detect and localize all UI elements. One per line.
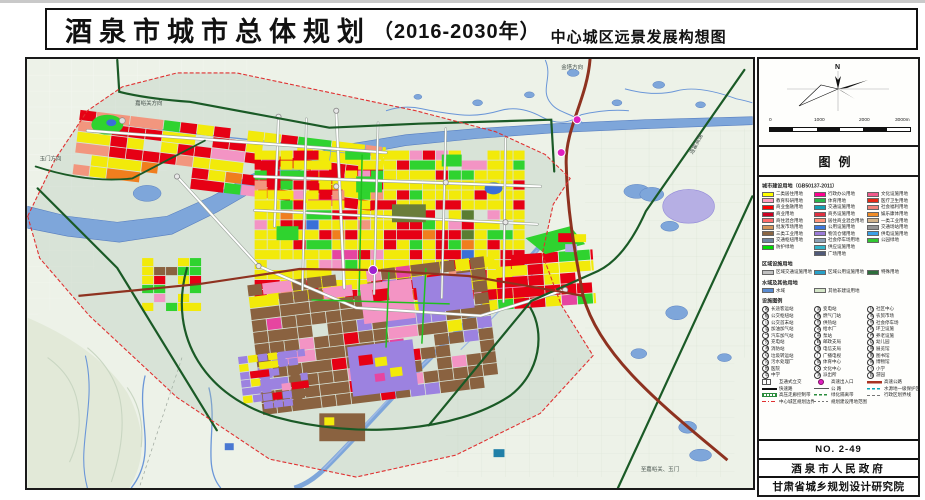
color-swatch — [814, 270, 826, 275]
legend-label: 泵站 — [823, 334, 832, 339]
facility-legend-item: 广广播电视 — [814, 352, 866, 359]
legend-label: 给水厂 — [823, 327, 837, 332]
legend-label: 医院 — [771, 367, 780, 372]
line-legend-item: 互通式立交 — [762, 379, 814, 386]
legend-item: 行政办公用地 — [814, 191, 866, 198]
legend-label: 小学 — [876, 367, 885, 372]
legend-label: 二类居住用地 — [776, 192, 803, 197]
page: 酒泉市城市总体规划 （2016-2030年） 中心城区远景发展构想图 金塔方向嘉… — [0, 0, 925, 500]
water-legend-row: 水域其他非建设用地 — [762, 288, 915, 295]
color-swatch — [867, 231, 879, 236]
facility-icon: 养 — [867, 333, 874, 340]
plan-years: （2016-2030年） — [373, 15, 541, 44]
scale-bar: 0 1000 2000 3000m — [769, 117, 911, 139]
facility-legend-item: 医医院 — [762, 365, 814, 372]
color-swatch — [814, 205, 826, 210]
legend-label: 燃气门站 — [823, 314, 841, 319]
color-swatch — [867, 225, 879, 230]
facility-legend-item: 市农贸市场 — [867, 313, 918, 320]
legend-item: 批发市场用地 — [762, 224, 814, 231]
bridge-swatch — [762, 379, 771, 385]
facility-icon: 医 — [762, 365, 769, 372]
facility-legend-item: 停社会停车场 — [867, 319, 918, 326]
title-bar: 酒泉市城市总体规划 （2016-2030年） 中心城区远景发展构想图 — [45, 8, 918, 50]
dash-grey-swatch — [867, 392, 882, 399]
legend-label: 水源地一级保护区 — [884, 386, 918, 391]
facility-legend-item: 养养老设施 — [867, 333, 918, 340]
legend-item: 公用设施用地 — [814, 224, 866, 231]
facility-icon: 热 — [814, 319, 821, 326]
design-institute: 甘肃省城乡规划设计研究院 — [759, 476, 918, 495]
legend-label: 高速公路 — [884, 380, 902, 385]
facility-icon: 枢 — [762, 313, 769, 320]
facility-legend-item: 垃垃圾转运站 — [762, 352, 814, 359]
legend-label: 文化设施用地 — [881, 192, 908, 197]
color-swatch — [867, 205, 879, 210]
legend-label: 广播电视 — [823, 353, 841, 358]
svg-text:金塔方向: 金塔方向 — [561, 63, 583, 71]
legend-label: 商务设施用地 — [828, 212, 855, 217]
legend-label: 绿化隔离带 — [831, 393, 854, 398]
map-canvas: 金塔方向嘉峪关方向玉门方向连霍高速至嘉峪关、玉门 — [27, 59, 753, 488]
legend-label: 社区中心 — [876, 307, 894, 312]
legend-label: 商业金融用地 — [776, 205, 803, 210]
line-legend-item: 快速路 — [762, 385, 814, 392]
color-swatch — [814, 245, 826, 250]
legend-label: 图书馆 — [876, 353, 890, 358]
color-swatch — [814, 238, 826, 243]
facility-legend-item: 信电信支局 — [814, 346, 866, 353]
legend-label: 污水处理厂 — [771, 360, 794, 365]
dash-teal-swatch — [867, 385, 882, 392]
legend-label: 行政办公用地 — [828, 192, 855, 197]
color-swatch — [814, 212, 826, 217]
facility-legend-item: 污污水处理厂 — [762, 359, 814, 366]
legend-label: 规划建设用地范围 — [831, 399, 866, 404]
legend-body: 城市建设用地（GB50137-2011） 二类居住用地教育科研用地商业金融用地商… — [759, 177, 918, 444]
color-swatch — [814, 288, 826, 293]
legend-item: 居住商业混合用地 — [814, 217, 866, 224]
regional-legend-row: 区域交通设施用地区域公用设施用地特殊用地 — [762, 269, 915, 276]
facility-legend-item: 展展览馆 — [867, 346, 918, 353]
facility-icon: 垃 — [762, 352, 769, 359]
legend-label: 特殊用地 — [881, 270, 899, 275]
color-swatch — [814, 225, 826, 230]
line-legend-item: 规划建设用地范围 — [814, 398, 866, 405]
facility-legend-item: 公公交首末站 — [762, 319, 814, 326]
svg-text:至嘉峪关、玉门: 至嘉峪关、玉门 — [641, 465, 679, 473]
line-legend-item: 公 路 — [814, 385, 866, 392]
dashdot-red-swatch — [762, 398, 777, 405]
color-swatch — [762, 198, 774, 203]
scale-bar-segments — [769, 127, 911, 132]
sheet-number: NO. 2-49 — [759, 439, 918, 458]
legend-label: 娱乐康体用地 — [881, 212, 908, 217]
svg-text:玉门方向: 玉门方向 — [40, 155, 62, 163]
facility-icon: 公 — [762, 319, 769, 326]
compass-rose-icon: N — [759, 59, 918, 115]
line-legend-item: 高压走廊控制带 — [762, 392, 814, 399]
facility-legend-item: 泵泵站 — [814, 333, 866, 340]
facility-legend-item: 社社区中心 — [867, 306, 918, 313]
legend-label: 居住商业混合用地 — [828, 218, 864, 223]
legend-label: 交通设施用地 — [828, 205, 855, 210]
facility-icon: 污 — [762, 359, 769, 366]
legend-item: 广场用地 — [814, 250, 866, 257]
color-swatch — [814, 251, 826, 256]
legend-label: 变电站 — [823, 307, 837, 312]
legend-label: 一类工业用地 — [881, 218, 908, 223]
hatch-green-swatch — [762, 393, 777, 398]
line-legend-item: 行政区划界线 — [867, 392, 918, 399]
legend-label: 互通式立交 — [779, 380, 802, 385]
legend-label: 农贸市场 — [876, 314, 894, 319]
color-swatch — [762, 245, 774, 250]
facility-icon: 派 — [814, 372, 821, 379]
line-legend-item: 水源地一级保护区 — [867, 385, 918, 392]
north-label: N — [835, 64, 840, 71]
facility-legend-item: 图图书馆 — [867, 352, 918, 359]
facility-icon: 博 — [867, 359, 874, 366]
color-swatch — [814, 218, 826, 223]
legend-item: 教育科研用地 — [762, 198, 814, 205]
facility-legend-item: 邮邮政支局 — [814, 339, 866, 346]
legend-label: 物流仓储用地 — [828, 232, 855, 237]
facility-icon: 水 — [814, 326, 821, 333]
legend-label: 游园 — [876, 373, 885, 378]
legend-item: 水域 — [762, 288, 814, 295]
facility-icon: 小 — [867, 365, 874, 372]
legend-item: 供电设施用地 — [867, 231, 918, 238]
water-section-header: 水域及其他用地 — [762, 278, 915, 287]
legend-label: 消防站 — [771, 347, 785, 352]
legend-label: 教育科研用地 — [776, 199, 803, 204]
legend-item: 文化设施用地 — [867, 191, 918, 198]
facility-icon: 泵 — [814, 333, 821, 340]
legend-label: 行政区划界线 — [884, 393, 911, 398]
legend-label: 体育用地 — [828, 199, 846, 204]
legend-item: 交通场站用地 — [867, 224, 918, 231]
legend-label: 区域交通设施用地 — [776, 270, 812, 275]
legend-label: 公园绿地 — [881, 238, 899, 243]
facility-icon: 油 — [762, 326, 769, 333]
facility-legend-item: 热供热站 — [814, 319, 866, 326]
legend-label: 博物馆 — [876, 360, 890, 365]
facility-icon: 环 — [867, 326, 874, 333]
color-swatch — [867, 218, 879, 223]
legend-label: 防护绿地 — [776, 245, 794, 250]
facility-legend-item: 客长途客运站 — [762, 306, 814, 313]
color-swatch — [762, 205, 774, 210]
facility-icon: 展 — [867, 346, 874, 353]
legend-item: 特殊用地 — [867, 269, 918, 276]
legend-item: 娱乐康体用地 — [867, 211, 918, 218]
legend-label: 公 路 — [831, 386, 841, 391]
color-swatch — [867, 212, 879, 217]
line-red-swatch — [867, 379, 882, 386]
legend-label: 派出所 — [823, 373, 837, 378]
facility-icon: 文 — [814, 365, 821, 372]
legend-label: 幼儿园 — [876, 340, 890, 345]
legend-label: 供热站 — [823, 320, 837, 325]
landuse-section-header: 城市建设用地（GB50137-2011） — [762, 181, 915, 190]
svg-text:嘉峪关方向: 嘉峪关方向 — [135, 99, 162, 107]
legend-label: 其他非建设用地 — [828, 289, 860, 294]
title-block: NO. 2-49 酒泉市人民政府 甘肃省城乡规划设计研究院 — [759, 439, 918, 495]
dot-swatch — [818, 379, 824, 385]
line-black-swatch — [762, 385, 777, 392]
facility-icon: 中 — [762, 372, 769, 379]
color-swatch — [762, 231, 774, 236]
color-swatch — [762, 218, 774, 223]
facility-icon: 停 — [867, 319, 874, 326]
legend-item: 一类工业用地 — [867, 217, 918, 224]
dash-grey2-swatch — [814, 398, 829, 405]
color-swatch — [762, 288, 774, 293]
color-swatch — [814, 231, 826, 236]
legend-item: 防护绿地 — [762, 244, 814, 251]
dash-green-swatch — [814, 392, 829, 399]
legend-label: 展览馆 — [876, 347, 890, 352]
legend-sidebar: N 0 1000 2000 3000m 图例 城市建设用地（GB50137-20… — [757, 57, 920, 497]
legend-label: 公交枢纽站 — [771, 314, 794, 319]
legend-label: 三类工业用地 — [776, 232, 803, 237]
facility-icon: 消 — [762, 346, 769, 353]
legend-item: 二类居住用地 — [762, 191, 814, 198]
facility-icon: 幼 — [867, 339, 874, 346]
page-subtitle: 中心城区远景发展构想图 — [551, 26, 727, 47]
legend-label: 公交首末站 — [771, 320, 794, 325]
facility-icon: 客 — [762, 306, 769, 313]
facility-legend-item: 博博物馆 — [867, 359, 918, 366]
line-legend-item: 中心城区规划边界 — [762, 398, 814, 405]
facility-legend-item: 文文化中心 — [814, 365, 866, 372]
facility-icon: 变 — [814, 306, 821, 313]
legend-item: 商业金融用地 — [762, 204, 814, 211]
facility-legend-item: 幼幼儿园 — [867, 339, 918, 346]
legend-item: 交通枢纽用地 — [762, 237, 814, 244]
page-title: 酒泉市城市总体规划 — [65, 10, 371, 49]
facility-legend-item: 变变电站 — [814, 306, 866, 313]
legend-label: 社会停车场用地 — [828, 238, 860, 243]
color-swatch — [762, 270, 774, 275]
legend-label: 批发市场用地 — [776, 225, 803, 230]
legend-label: 公用设施用地 — [828, 225, 855, 230]
facility-legend-item: 燃燃气门站 — [814, 313, 866, 320]
facility-legend-item: 环环卫设施 — [867, 326, 918, 333]
line-legend-item: 高速公路 — [867, 379, 918, 386]
legend-label: 汽车加气站 — [771, 334, 794, 339]
legend-item: 社会停车场用地 — [814, 237, 866, 244]
facility-legend-item: 充充电站 — [762, 339, 814, 346]
line-legend-grid: 互通式立交高速出入口高速公路快速路公 路水源地一级保护区高压走廊控制带绿化隔离带… — [762, 379, 915, 405]
legend-label: 社会福利用地 — [881, 205, 908, 210]
facility-icon: 气 — [762, 333, 769, 340]
legend-label: 水域 — [776, 289, 785, 294]
scan-edge-strip — [0, 0, 925, 3]
legend-label: 加油加气站 — [771, 327, 794, 332]
legend-label: 高速出入口 — [831, 380, 854, 385]
color-swatch — [814, 192, 826, 197]
color-swatch — [762, 212, 774, 217]
legend-item: 其他非建设用地 — [814, 288, 866, 295]
facility-icon: 体 — [814, 359, 821, 366]
line-legend-item: 绿化隔离带 — [814, 392, 866, 399]
facility-icon: 燃 — [814, 313, 821, 320]
facility-icon: 图 — [867, 352, 874, 359]
legend-label: 商住混合用地 — [776, 218, 803, 223]
legend-label: 高压走廊控制带 — [779, 393, 811, 398]
color-swatch — [867, 192, 879, 197]
legend-item: 公园绿地 — [867, 237, 918, 244]
facility-legend-item: 派派出所 — [814, 372, 866, 379]
legend-item: 体育用地 — [814, 198, 866, 205]
color-swatch — [762, 225, 774, 230]
legend-item: 供应设施用地 — [814, 244, 866, 251]
facility-icon: 邮 — [814, 339, 821, 346]
facility-legend-item: 气汽车加气站 — [762, 333, 814, 340]
legend-label: 充电站 — [771, 340, 785, 345]
facility-legend-item: 枢公交枢纽站 — [762, 313, 814, 320]
facility-icon: 广 — [814, 352, 821, 359]
legend-label: 垃圾转运站 — [771, 353, 794, 358]
planning-map: 金塔方向嘉峪关方向玉门方向连霍高速至嘉峪关、玉门 — [25, 57, 755, 490]
color-swatch — [762, 238, 774, 243]
color-swatch — [762, 192, 774, 197]
landuse-legend-grid: 二类居住用地教育科研用地商业金融用地商业用地商住混合用地批发市场用地三类工业用地… — [762, 191, 915, 257]
legend-label: 交通场站用地 — [881, 225, 908, 230]
legend-label: 供电设施用地 — [881, 232, 908, 237]
legend-item: 三类工业用地 — [762, 231, 814, 238]
facility-legend-item: 小小学 — [867, 365, 918, 372]
facility-icon: 充 — [762, 339, 769, 346]
legend-label: 环卫设施 — [876, 327, 894, 332]
line-legend-item: 高速出入口 — [814, 379, 866, 386]
legend-item: 商住混合用地 — [762, 217, 814, 224]
legend-item: 物流仓储用地 — [814, 231, 866, 238]
color-swatch — [814, 198, 826, 203]
legend-label: 中学 — [771, 373, 780, 378]
facility-icon: 园 — [867, 372, 874, 379]
legend-label: 社会停车场 — [876, 320, 899, 325]
legend-label: 商业用地 — [776, 212, 794, 217]
regional-section-header: 区域设施用地 — [762, 259, 915, 268]
legend-title: 图例 — [759, 147, 918, 177]
plan-owner: 酒泉市人民政府 — [759, 458, 918, 476]
color-swatch — [867, 198, 879, 203]
legend-item: 区域交通设施用地 — [762, 269, 814, 276]
legend-label: 快速路 — [779, 386, 793, 391]
compass-scale-panel: N 0 1000 2000 3000m — [759, 59, 918, 147]
legend-item: 医疗卫生用地 — [867, 198, 918, 205]
facility-legend-item: 油加油加气站 — [762, 326, 814, 333]
facility-legend-item: 中中学 — [762, 372, 814, 379]
legend-label: 文化中心 — [823, 367, 841, 372]
legend-item: 商业用地 — [762, 211, 814, 218]
legend-label: 邮政支局 — [823, 340, 841, 345]
facility-icon: 社 — [867, 306, 874, 313]
legend-label: 中心城区规划边界 — [779, 399, 814, 404]
legend-item: 社会福利用地 — [867, 204, 918, 211]
facility-icon: 市 — [867, 313, 874, 320]
facility-legend-item: 水给水厂 — [814, 326, 866, 333]
legend-item: 商务设施用地 — [814, 211, 866, 218]
legend-item: 区域公用设施用地 — [814, 269, 866, 276]
legend-label: 医疗卫生用地 — [881, 199, 908, 204]
legend-item: 交通设施用地 — [814, 204, 866, 211]
color-swatch — [867, 270, 879, 275]
color-swatch — [867, 238, 879, 243]
line-thin-swatch — [814, 385, 829, 392]
legend-label: 交通枢纽用地 — [776, 238, 803, 243]
scale-tick-labels: 0 1000 2000 3000m — [769, 117, 911, 125]
legend-label: 长途客运站 — [771, 307, 794, 312]
facility-legend-item: 园游园 — [867, 372, 918, 379]
facilities-section-header: 设施图例 — [762, 296, 915, 305]
legend-label: 养老设施 — [876, 334, 894, 339]
facility-legend-item: 消消防站 — [762, 346, 814, 353]
legend-label: 广场用地 — [828, 251, 846, 256]
legend-label: 电信支局 — [823, 347, 841, 352]
legend-label: 体育中心 — [823, 360, 841, 365]
legend-label: 供应设施用地 — [828, 245, 855, 250]
facilities-legend-grid: 客长途客运站枢公交枢纽站公公交首末站油加油加气站气汽车加气站充充电站消消防站垃垃… — [762, 306, 915, 379]
legend-label: 区域公用设施用地 — [828, 270, 864, 275]
facility-icon: 信 — [814, 346, 821, 353]
facility-legend-item: 体体育中心 — [814, 359, 866, 366]
